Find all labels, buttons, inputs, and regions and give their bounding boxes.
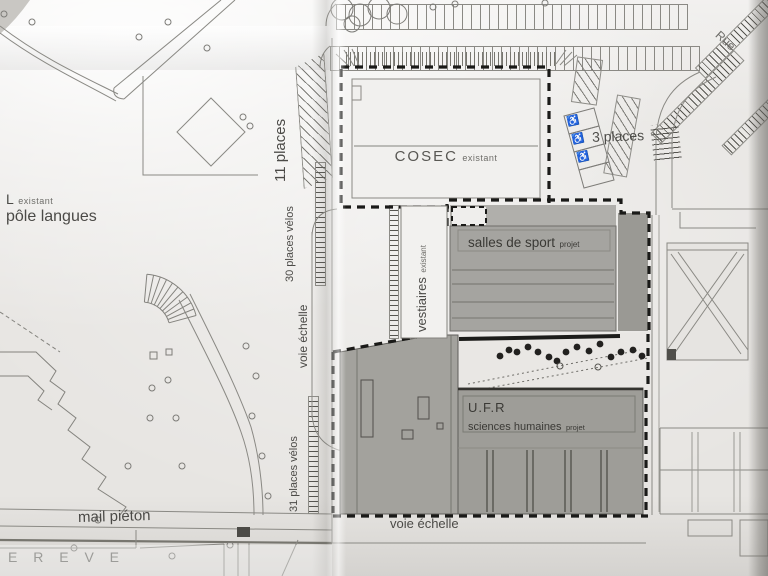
voie-echelle-v-text: voie échelle [296,305,310,368]
site-plan-linework [0,0,768,576]
ufr-label: U.F.R sciences humaines projet [468,400,585,435]
wheelchair-icon: ♿ [576,151,590,164]
velos-30-text: 30 places vélos [284,206,296,282]
hatch-strip-mid [571,56,603,105]
parking-ladder-rue-2 [650,50,744,144]
hatch-strip-3-places [603,95,641,178]
x-braced-building [667,243,748,360]
vestiaires-name: vestiaires [414,277,429,332]
site-plan-photo: Rue 11 places COSEC existant 3 places ♿ … [0,0,768,576]
sport-hall-label: salles de sport projet [468,234,580,252]
steps-right [650,123,682,162]
ufr-west-wing [333,334,458,514]
parking-ladder-rue-3 [721,90,768,155]
cosec-status: existant [462,153,497,163]
hatch-band-cosec-top [346,52,556,66]
cosec-building [341,67,549,207]
mail-pieton-label: mail piéton [78,507,151,526]
breve-building-label: E R E V E [8,549,125,565]
amphitheater-fan [144,274,196,323]
street-label-rue: Rue [713,28,739,53]
cosec-name: COSEC [395,148,458,165]
crossing-marker [237,527,250,537]
pole-status: existant [18,196,53,206]
existing-building-outline-southwest [0,312,126,515]
places-3-text: 3 places [592,127,645,145]
pole-prefix: L [6,191,14,207]
voie-echelle-b-text: voie échelle [390,516,459,531]
places-11-text: 11 places [272,119,289,182]
velos-31-text: 31 places vélos [288,436,300,512]
ufr-main-building [333,334,648,516]
vestiaires-label: vestiaires existant [413,245,431,332]
voie-echelle-label-vertical: voie échelle [296,305,310,368]
paper-edge-shadow [748,0,768,576]
tree-court-wedge [458,332,648,390]
wheelchair-icon: ♿ [566,115,580,128]
parking-row-top-2 [330,46,700,71]
sport-hall-building [447,200,649,333]
accessible-parking-bays [564,108,614,188]
bike-rack-31 [308,396,319,514]
corner-shadow [0,0,30,34]
trees-and-markers [1,0,548,559]
ufr-status: projet [566,423,585,432]
parking-strip-11-places [294,53,333,189]
mail-pieton-text: mail piéton [78,507,151,526]
pole-name: pôle langues [6,209,97,226]
paper-fold [312,0,346,576]
paper-light-wash [0,0,768,576]
roads-and-paths [0,0,768,576]
rue-text: Rue [713,28,739,53]
parking-ladder-rue-1 [695,0,768,79]
bike-rack-30 [315,162,326,286]
wheelchair-icon: ♿ [571,133,585,146]
vestiaires-status: existant [419,245,428,273]
ufr-subname: sciences humaines [468,421,562,433]
stair-strip-vestiaires [389,205,399,339]
cosec-label: COSEC existant [352,148,540,166]
parking-label-3-places: 3 places [592,127,645,145]
paper-sheet-edge [0,545,332,576]
parking-label-11-places: 11 places [272,119,289,182]
paper-crease [0,26,330,70]
ufr-name: U.F.R [468,400,585,416]
sport-status: projet [560,240,580,249]
voie-echelle-label-bottom: voie échelle [390,516,459,531]
vestiaires-building [401,206,447,338]
sport-name: salles de sport [468,235,555,250]
breve-text: E R E V E [8,549,125,565]
bike-label-31: 31 places vélos [288,436,300,512]
bike-label-30: 30 places vélos [284,206,296,282]
parking-row-top-1 [336,4,688,30]
pole-langues-label: L existant pôle langues [6,192,97,226]
